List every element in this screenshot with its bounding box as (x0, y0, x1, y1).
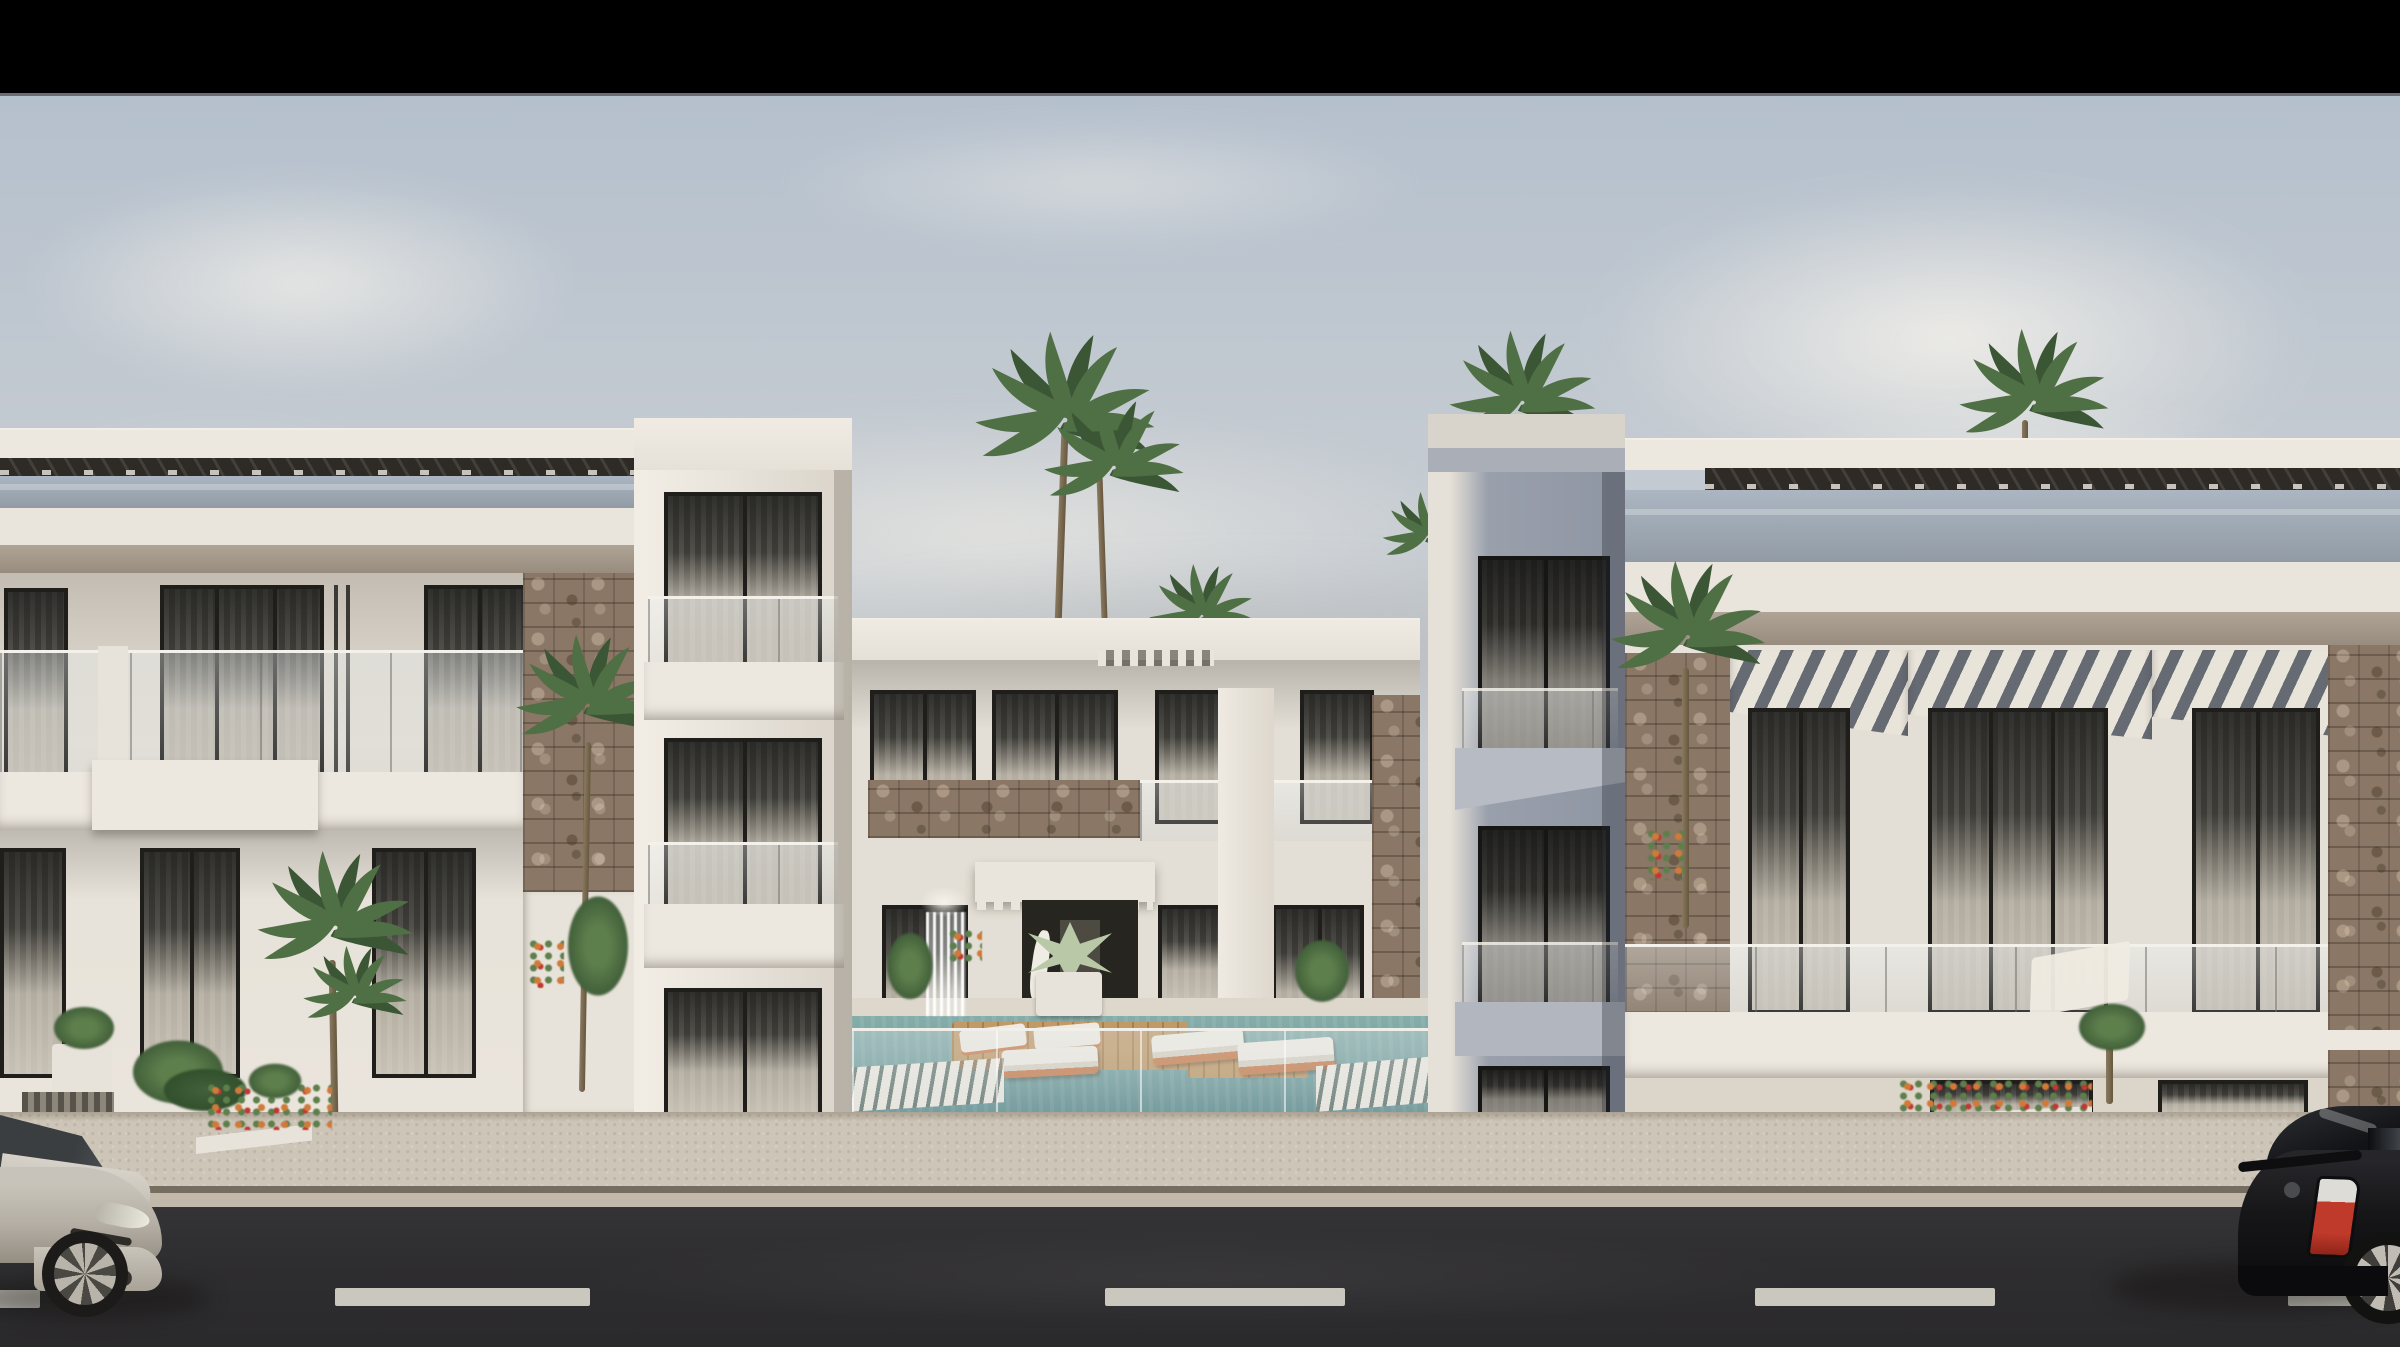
letterbox-bar (0, 0, 2400, 96)
dentil-cornice (1098, 650, 1214, 666)
planter-grass (240, 1058, 310, 1104)
tree-crown (2068, 996, 2156, 1058)
agave-pot (1036, 972, 1102, 1016)
left-fascia (0, 508, 640, 545)
window (664, 988, 822, 1120)
planter-plant (880, 922, 940, 1010)
palm-trunk (1682, 668, 1689, 928)
lane-marking (1755, 1288, 1995, 1306)
left-tower-cap (634, 418, 852, 472)
balcony-slab (644, 662, 844, 720)
rooftop-glass-railing (0, 476, 640, 508)
rooftop-pergola (1705, 468, 2400, 490)
palm-fronds (300, 944, 410, 1029)
right-parapet (1625, 438, 2400, 470)
waterfall-plant (912, 882, 976, 922)
pot-plant (44, 1000, 124, 1056)
balcony-slab (1625, 1012, 2400, 1078)
balcony-divider (98, 646, 128, 775)
balcony-slab (1455, 1002, 1625, 1056)
projecting-balcony (92, 760, 318, 830)
glass-pool-fence (852, 1028, 1430, 1115)
tower-shade-edge (834, 470, 852, 1112)
left-parapet (0, 428, 640, 460)
flower-planter (946, 928, 982, 966)
curb-face (0, 1193, 2400, 1207)
facade-pier (1218, 688, 1274, 1012)
palm-crown (1040, 396, 1188, 511)
car-bumper (2238, 1266, 2388, 1296)
fern (558, 880, 638, 1012)
rooftop-pergola (0, 458, 640, 476)
lane-marking (1105, 1288, 1345, 1306)
car-wheel (42, 1231, 128, 1317)
lane-marking (335, 1288, 590, 1306)
entrance-canopy (975, 862, 1155, 902)
car-badge (2284, 1182, 2300, 1198)
palm-crown (1955, 326, 2113, 449)
shadow-tower-subcap (1428, 448, 1625, 472)
slab-strip (2328, 1030, 2400, 1050)
curb-line (0, 1186, 2400, 1193)
shadow-tower-cap (1428, 414, 1625, 448)
road-sheen (300, 1207, 2100, 1347)
balcony-glass-railing (648, 596, 838, 665)
cloud (0, 133, 680, 433)
black-car (2222, 1098, 2400, 1328)
flower-bed (1896, 1078, 2092, 1114)
balcony-glass-railing (1462, 688, 1618, 751)
architectural-render (0, 0, 2400, 1347)
balcony-glass-railing (0, 650, 523, 778)
balcony-glass-railing (648, 842, 838, 907)
palm-crown (1606, 558, 1770, 685)
sidewalk-shade (0, 1112, 2400, 1122)
balcony-slab (644, 904, 844, 968)
flower-planter (1644, 828, 1684, 880)
silver-car (0, 1105, 200, 1315)
stone-strip (1372, 695, 1420, 1025)
cloud (650, 93, 1550, 273)
planter-plant (1286, 930, 1358, 1012)
sidewalk (0, 1112, 2400, 1186)
left-soffit (0, 545, 640, 575)
balcony-glass-railing (1462, 942, 1618, 1005)
rooftop-glass-railing (1625, 490, 2400, 562)
window (1158, 905, 1222, 1008)
balcony-glass-railing (1625, 944, 2400, 1015)
stone-balcony-parapet (868, 780, 1140, 838)
